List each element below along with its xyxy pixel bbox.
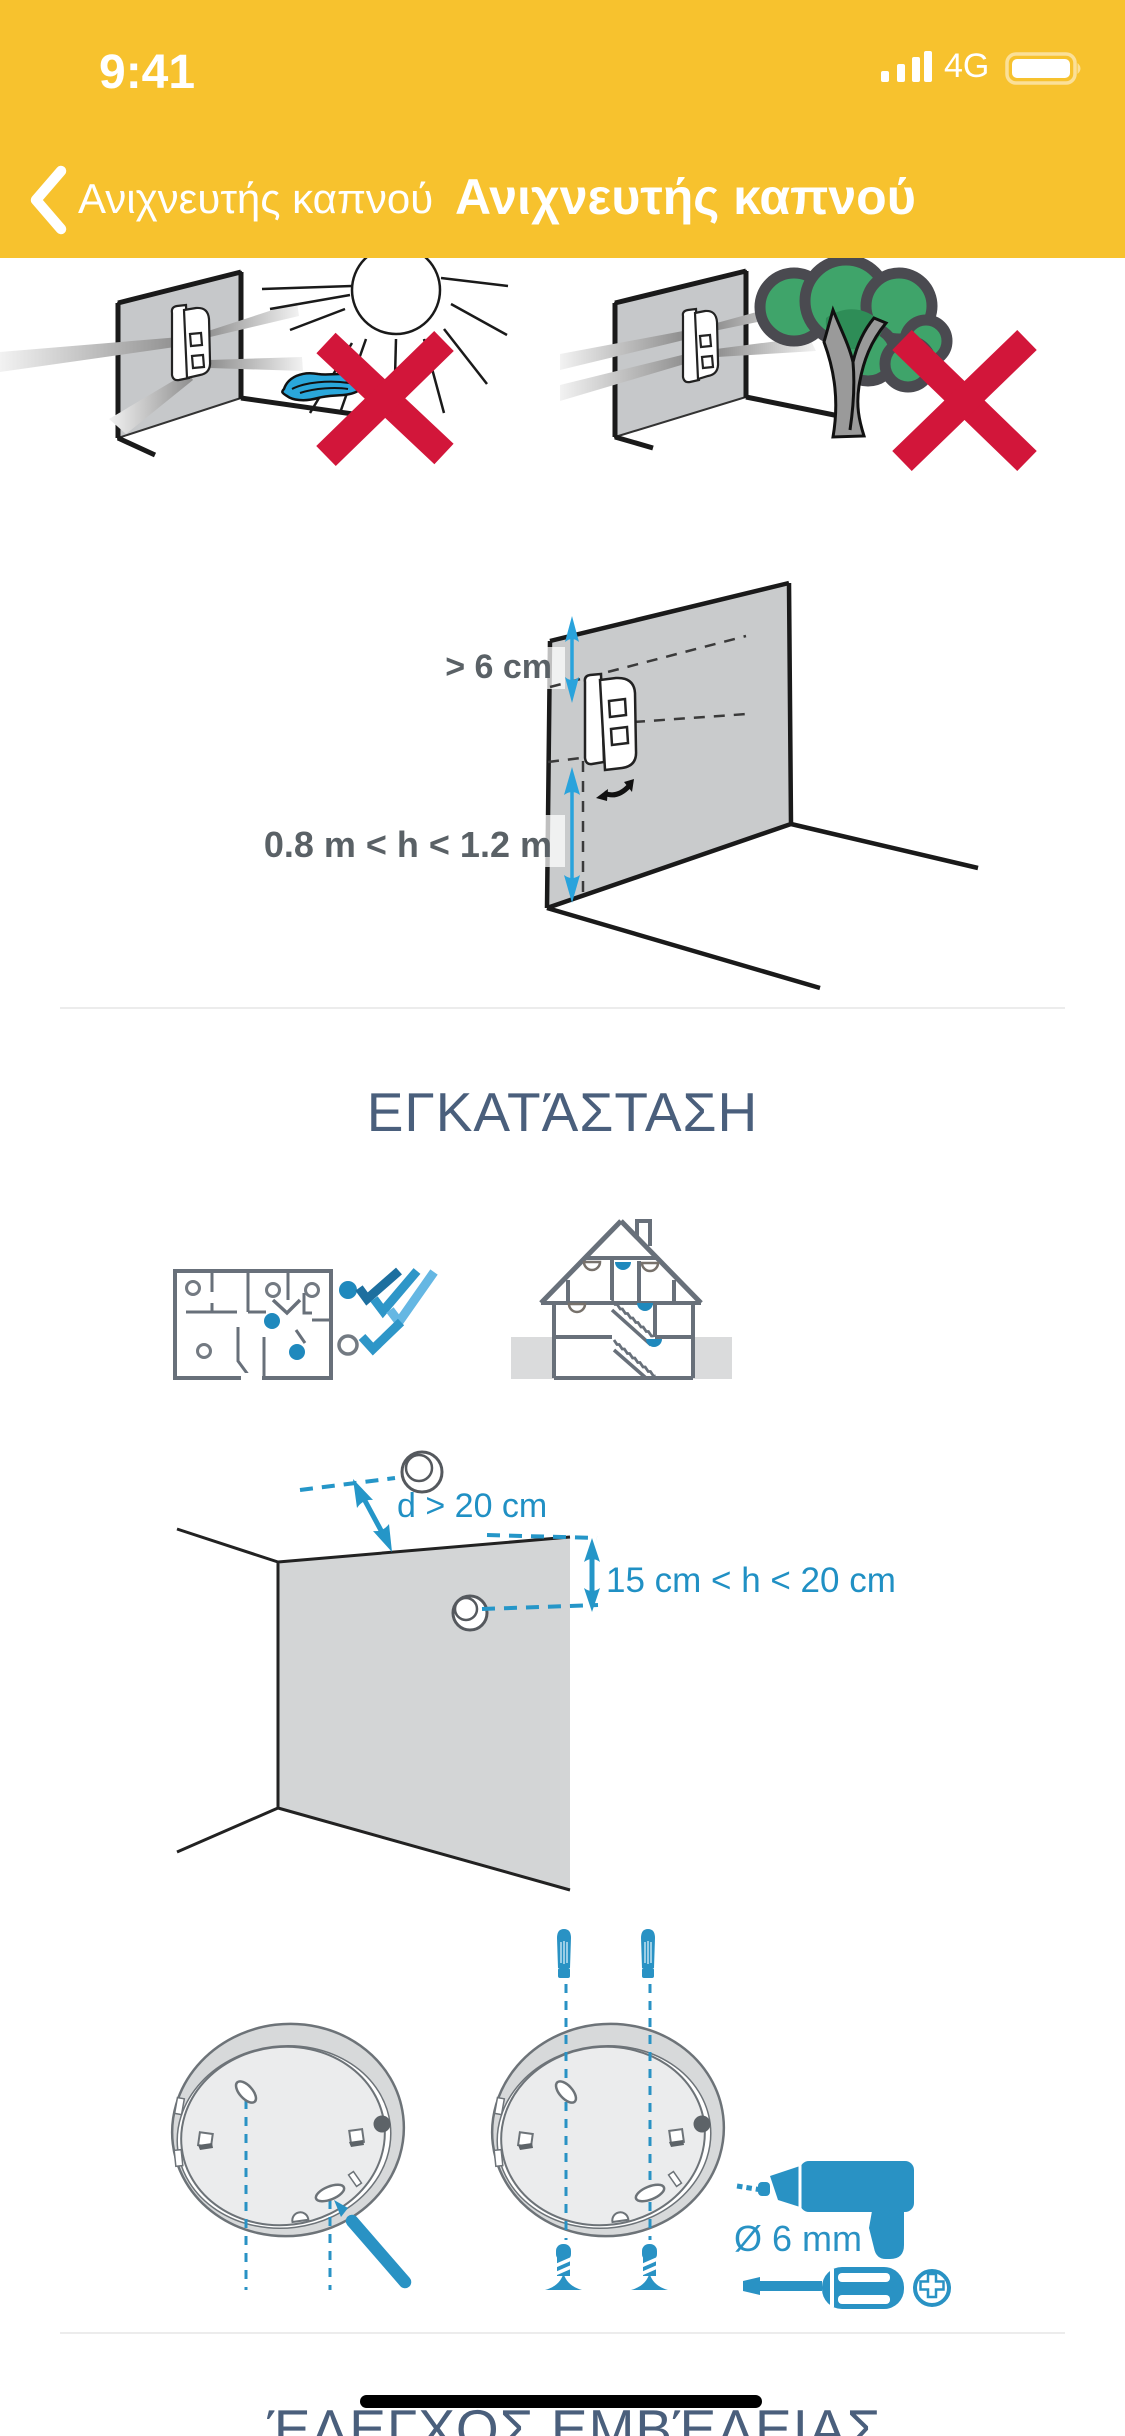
svg-text:15 cm < h < 20 cm: 15 cm < h < 20 cm [606, 1561, 896, 1600]
svg-text:0.8 m < h < 1.2 m: 0.8 m < h < 1.2 m [264, 824, 552, 865]
svg-text:Ø 6 mm: Ø 6 mm [734, 2218, 862, 2259]
svg-text:d > 20 cm: d > 20 cm [397, 1487, 547, 1525]
svg-text:> 6 cm: > 6 cm [445, 648, 552, 686]
